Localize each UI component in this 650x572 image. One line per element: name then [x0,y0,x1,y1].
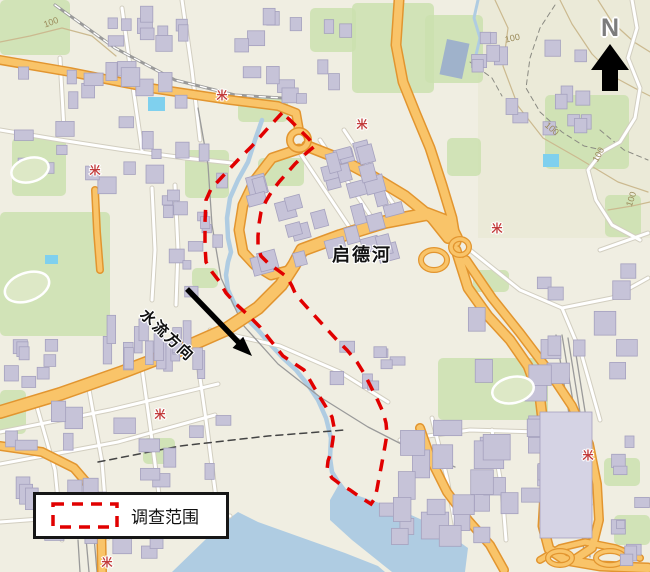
svg-text:米: 米 [216,88,229,102]
north-arrow-icon [590,44,630,92]
rail-depot [540,412,592,538]
north-letter: N [586,16,634,41]
river-name-label: 启德河 [332,241,392,267]
svg-text:米: 米 [582,448,595,462]
map-figure: 米米米米米米米100100100100100 启德河 水流方向 N 调查范围 [0,0,650,572]
svg-text:米: 米 [154,407,167,421]
legend: 调查范围 [33,492,229,539]
svg-text:米: 米 [356,117,369,131]
svg-text:米: 米 [491,221,504,235]
svg-text:米: 米 [89,163,102,177]
survey-area-symbol [50,501,120,530]
legend-label: 调查范围 [131,503,199,528]
map-canvas[interactable]: 米米米米米米米100100100100100 [0,0,650,572]
svg-text:米: 米 [101,555,114,569]
north-indicator: N [586,16,634,92]
